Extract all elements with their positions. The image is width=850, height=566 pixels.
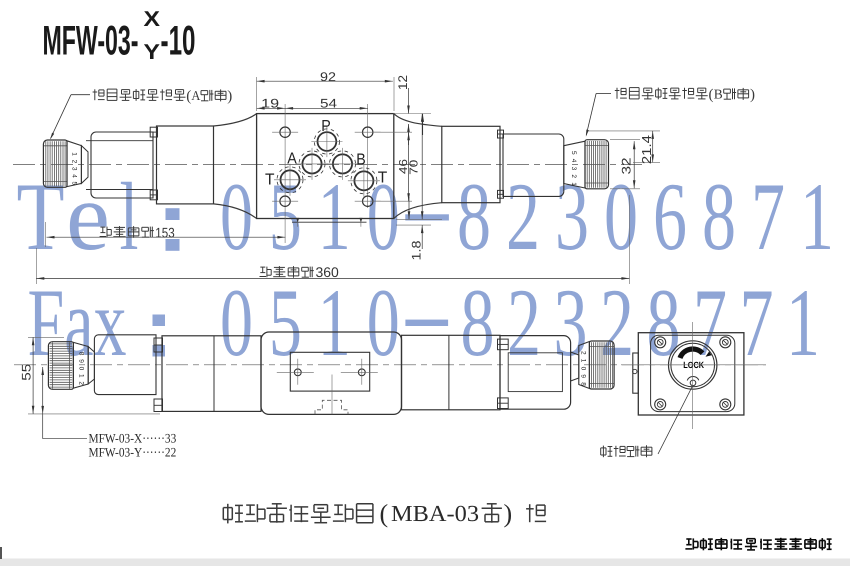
svg-text:1: 1 xyxy=(318,269,351,376)
svg-text:5: 5 xyxy=(269,269,302,376)
svg-text:8: 8 xyxy=(579,382,586,386)
svg-text:8: 8 xyxy=(461,269,495,376)
svg-text:0: 0 xyxy=(367,269,400,376)
svg-text:1: 1 xyxy=(579,359,586,363)
svg-text:1: 1 xyxy=(318,163,351,270)
svg-text:A: A xyxy=(287,150,297,167)
svg-text:5: 5 xyxy=(71,182,78,186)
svg-text:1: 1 xyxy=(570,182,577,186)
svg-text:MFW-03-: MFW-03- xyxy=(43,17,139,64)
svg-text:4: 4 xyxy=(570,159,577,163)
svg-text:0: 0 xyxy=(78,367,85,371)
svg-text:70: 70 xyxy=(409,160,421,175)
svg-text:1: 1 xyxy=(786,269,820,376)
svg-text:19: 19 xyxy=(261,97,279,111)
svg-text:4: 4 xyxy=(71,174,78,178)
svg-text:92: 92 xyxy=(320,70,336,84)
svg-text:0: 0 xyxy=(579,367,586,371)
svg-text:T: T xyxy=(17,163,65,270)
svg-text:1: 1 xyxy=(800,163,834,270)
svg-text:B: B xyxy=(714,87,723,102)
svg-text:9: 9 xyxy=(78,359,85,363)
svg-text:7: 7 xyxy=(751,163,785,270)
svg-text:2: 2 xyxy=(78,381,85,385)
svg-text:3: 3 xyxy=(555,163,589,270)
svg-text:2: 2 xyxy=(600,269,634,376)
svg-text:): ) xyxy=(504,499,513,528)
svg-text:(: ( xyxy=(709,87,714,103)
svg-text:Y: Y xyxy=(144,40,161,64)
svg-text:6: 6 xyxy=(653,163,687,270)
svg-text:T: T xyxy=(378,170,388,187)
svg-text:0: 0 xyxy=(220,269,253,376)
svg-text:1.8: 1.8 xyxy=(410,240,424,260)
svg-text:l: l xyxy=(120,163,139,270)
svg-text:8: 8 xyxy=(647,269,681,376)
svg-text:153: 153 xyxy=(155,225,175,241)
svg-text:2: 2 xyxy=(71,160,78,164)
svg-text:Fax: Fax xyxy=(28,269,127,376)
svg-text:1: 1 xyxy=(71,152,78,156)
svg-text:9: 9 xyxy=(579,374,586,378)
svg-text:MFW-03-Y······22: MFW-03-Y······22 xyxy=(89,444,177,459)
svg-text:B: B xyxy=(356,151,366,168)
svg-text:0: 0 xyxy=(220,163,253,270)
svg-text:2: 2 xyxy=(506,163,540,270)
svg-text:2: 2 xyxy=(579,351,586,355)
svg-text:2: 2 xyxy=(570,174,577,178)
svg-text:3: 3 xyxy=(71,167,78,171)
svg-text:12: 12 xyxy=(396,75,410,90)
svg-text:X: X xyxy=(144,7,161,31)
svg-text:55: 55 xyxy=(20,364,34,381)
svg-text:T: T xyxy=(265,172,275,189)
svg-text:21.4: 21.4 xyxy=(639,135,654,164)
svg-text:8: 8 xyxy=(702,163,736,270)
svg-text:-10: -10 xyxy=(161,17,196,64)
svg-text:A: A xyxy=(191,88,200,103)
svg-text:): ) xyxy=(750,87,755,103)
svg-text:e: e xyxy=(66,163,110,270)
svg-text:5: 5 xyxy=(570,151,577,155)
svg-text:8: 8 xyxy=(78,352,85,356)
svg-text:MBA-03: MBA-03 xyxy=(391,501,479,526)
svg-text:P: P xyxy=(321,118,331,135)
svg-text:8: 8 xyxy=(457,163,491,270)
svg-text:(: ( xyxy=(380,499,389,528)
svg-text:360: 360 xyxy=(316,264,340,280)
svg-text:7: 7 xyxy=(740,269,774,376)
svg-text:): ) xyxy=(227,89,232,105)
svg-text:3: 3 xyxy=(570,167,577,171)
svg-text:54: 54 xyxy=(320,96,337,110)
svg-text:2: 2 xyxy=(507,269,541,376)
svg-text:1: 1 xyxy=(78,374,85,378)
svg-text:32: 32 xyxy=(619,157,633,174)
